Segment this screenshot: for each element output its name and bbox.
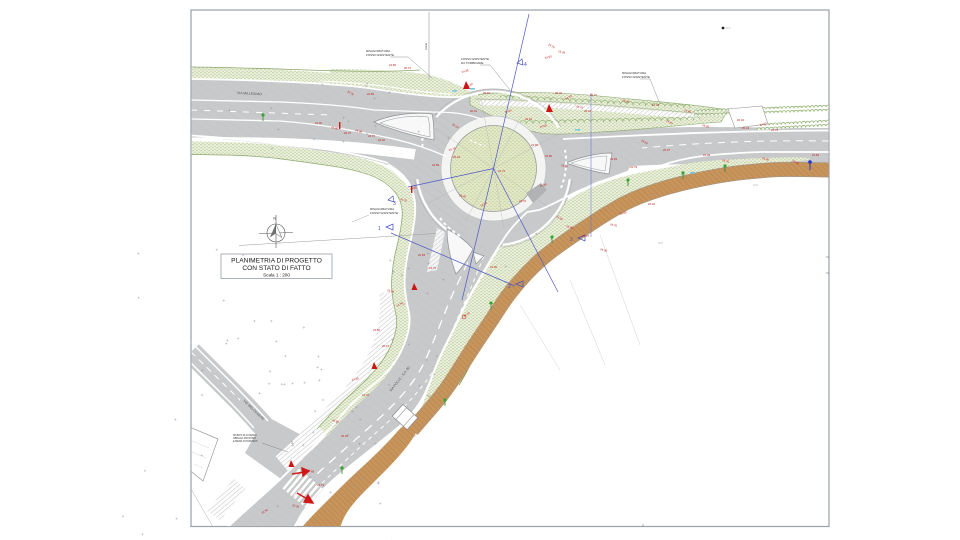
svg-text:25.07: 25.07: [344, 131, 351, 135]
svg-text:24.60: 24.60: [378, 138, 385, 142]
svg-text:25.34: 25.34: [584, 109, 591, 113]
svg-text:25.34: 25.34: [453, 155, 460, 159]
svg-text:24.79: 24.79: [317, 483, 324, 487]
svg-text:24.90: 24.90: [490, 265, 497, 269]
svg-text:26.40: 26.40: [525, 117, 532, 121]
svg-text:CON STATO DI FATTO: CON STATO DI FATTO: [242, 265, 310, 272]
svg-text:PLANIMETRIA DI PROGETTO: PLANIMETRIA DI PROGETTO: [231, 258, 322, 265]
svg-text:24.90: 24.90: [315, 121, 322, 125]
svg-text:N: N: [273, 216, 276, 221]
svg-text:4: 4: [524, 62, 527, 68]
svg-text:strada: strada: [425, 42, 428, 50]
svg-text:25.07: 25.07: [582, 234, 589, 238]
svg-text:24.70: 24.70: [519, 199, 526, 203]
svg-text:24.70: 24.70: [652, 103, 659, 107]
svg-text:25.07: 25.07: [382, 344, 389, 348]
svg-text:24.60: 24.60: [367, 92, 374, 96]
svg-text:25.07: 25.07: [483, 91, 490, 95]
svg-text:24.70: 24.70: [368, 134, 375, 138]
svg-text:24.90: 24.90: [531, 143, 538, 147]
svg-text:26.40: 26.40: [648, 202, 655, 206]
svg-text:FOSSO ESISTENTE: FOSSO ESISTENTE: [366, 53, 394, 57]
svg-text:FOSSO ESISTENTE: FOSSO ESISTENTE: [370, 211, 398, 215]
svg-text:24.80: 24.80: [389, 63, 396, 67]
svg-text:1: 1: [378, 226, 381, 232]
svg-text:24.70: 24.70: [362, 393, 369, 397]
svg-text:24.80: 24.80: [373, 328, 380, 332]
svg-text:24.83: 24.83: [418, 253, 425, 257]
svg-text:24.38: 24.38: [703, 153, 710, 157]
svg-text:DA TOMBINARE: DA TOMBINARE: [461, 61, 484, 65]
svg-text:24.79: 24.79: [498, 169, 505, 173]
svg-text:24.79: 24.79: [429, 266, 436, 270]
svg-text:FOSSO ESISTENTE: FOSSO ESISTENTE: [622, 75, 650, 79]
svg-text:E MEZZI AUTORIZZATI: E MEZZI AUTORIZZATI: [233, 440, 258, 443]
svg-text:24.79: 24.79: [630, 165, 637, 169]
svg-text:24.79: 24.79: [771, 128, 778, 132]
svg-text:26.40: 26.40: [470, 109, 477, 113]
svg-text:26.40: 26.40: [555, 91, 562, 95]
svg-text:24.83: 24.83: [812, 153, 819, 157]
svg-text:25.07: 25.07: [404, 66, 411, 70]
svg-text:24.80: 24.80: [545, 154, 552, 158]
svg-text:25.07: 25.07: [590, 93, 597, 97]
svg-text:26.40: 26.40: [737, 118, 744, 122]
svg-text:25.34: 25.34: [742, 126, 749, 130]
svg-text:DIVIETO DI ACCESSO: DIVIETO DI ACCESSO: [233, 434, 257, 437]
svg-text:2: 2: [508, 284, 511, 290]
svg-text:25.07: 25.07: [663, 148, 670, 152]
svg-text:Scala 1 : 200: Scala 1 : 200: [263, 273, 290, 278]
svg-text:2: 2: [570, 237, 573, 243]
svg-text:26.40: 26.40: [341, 434, 348, 438]
svg-text:OBBLIGO FRONTISTI: OBBLIGO FRONTISTI: [233, 438, 256, 440]
svg-text:24.83: 24.83: [610, 157, 617, 161]
svg-text:24.83: 24.83: [432, 163, 439, 167]
